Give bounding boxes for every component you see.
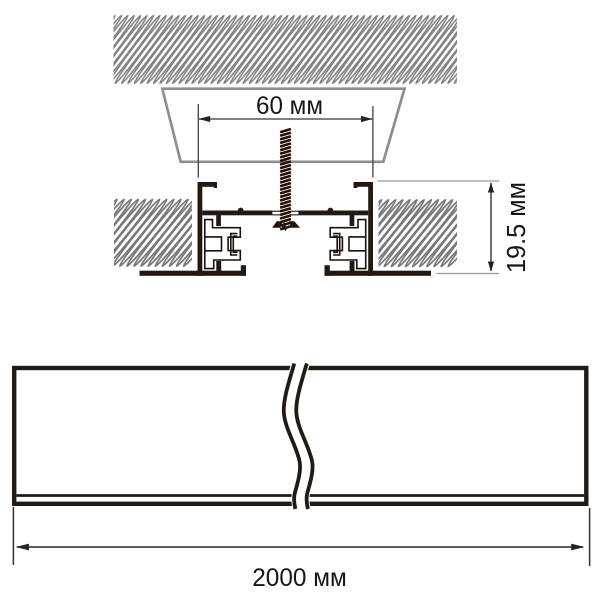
svg-text:19.5 мм: 19.5 мм — [503, 182, 531, 273]
svg-text:60 мм: 60 мм — [256, 92, 323, 120]
svg-text:2000 мм: 2000 мм — [252, 564, 347, 592]
